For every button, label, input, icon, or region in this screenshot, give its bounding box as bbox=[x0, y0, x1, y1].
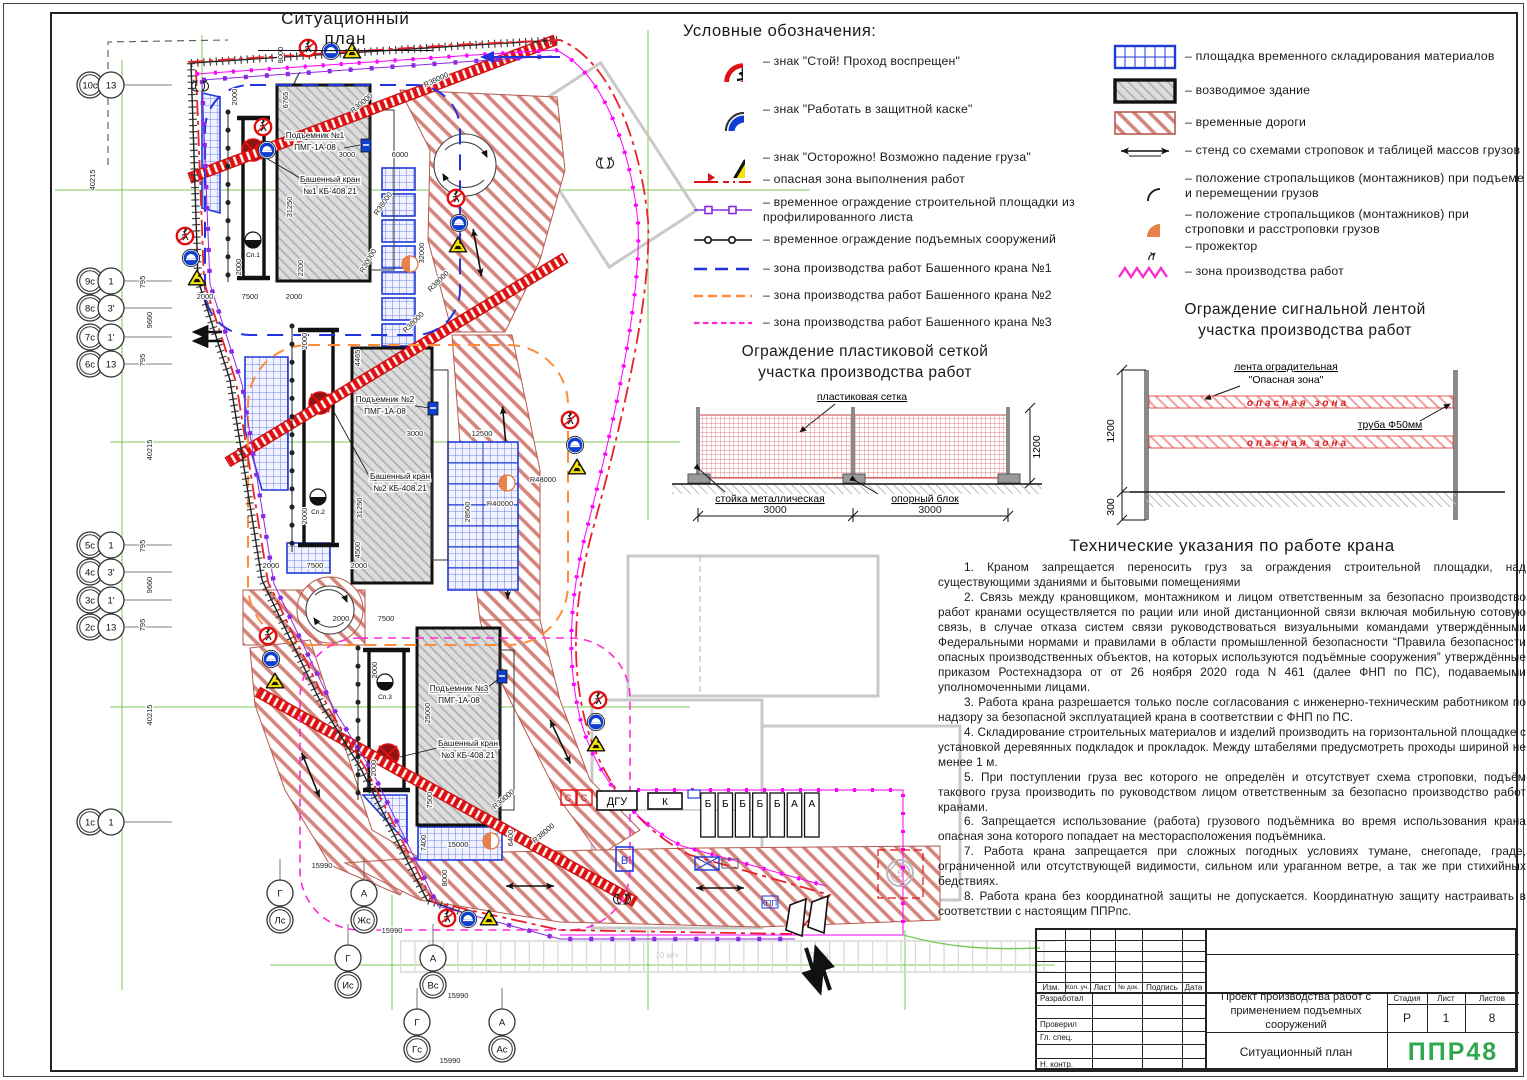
dim-label: 2000 bbox=[300, 333, 309, 350]
slinger-sling-position-icon bbox=[1105, 207, 1185, 237]
axis-bubble-label: 7с bbox=[85, 332, 95, 343]
axis-bubble-label: Жс bbox=[357, 915, 371, 926]
profiled-sheet-fence-line-icon bbox=[683, 198, 763, 222]
roads-swatch bbox=[1105, 110, 1185, 136]
dim-label: 31250 bbox=[355, 498, 364, 519]
tb-stage-label: Стадия bbox=[1387, 992, 1427, 1004]
legend-label: – временные дороги bbox=[1185, 115, 1306, 130]
axis-bubble-label: 5с bbox=[85, 540, 95, 551]
crane3-label: Башенный кран bbox=[438, 739, 498, 748]
floodlight-icon bbox=[596, 157, 613, 168]
dim-label: 40215 bbox=[88, 170, 97, 191]
lifting-fence-line-icon bbox=[683, 228, 763, 252]
dim-label: 2000 bbox=[286, 292, 303, 301]
dim-label: 795 bbox=[138, 276, 147, 289]
kpp-label: КПП bbox=[761, 899, 777, 908]
legend-row-stop-sign: – знак "Стой! Проход воспрещен" bbox=[683, 38, 1098, 86]
storage-area-swatch bbox=[1105, 44, 1185, 70]
hoist3-model: ПМГ-1А-08 bbox=[438, 696, 480, 705]
legend-row-storage-area: – площадка временного складирования мате… bbox=[1105, 42, 1525, 72]
legend-row-crane2-zone: – зона производства работ Башенного кран… bbox=[683, 284, 1098, 308]
mesh-fence-title-line2: участка производства работ bbox=[700, 363, 1030, 384]
ppr48-logo: ППР48 bbox=[1387, 1032, 1519, 1072]
legend-label: – знак "Осторожно! Возможно падение груз… bbox=[763, 150, 1031, 165]
tech-note: 4. Складирование строительных материалов… bbox=[938, 725, 1526, 770]
title-block: Изм. Кол. уч. Лист № док. Подпись Дата Р… bbox=[1035, 928, 1517, 1070]
dim-label: R38000 bbox=[530, 821, 556, 845]
legend-label: – положение стропальщиков (монтажников) … bbox=[1185, 171, 1525, 202]
dim-label: 795 bbox=[138, 354, 147, 367]
dim-label: 2000 bbox=[333, 614, 350, 623]
warn-sign-icon bbox=[587, 736, 604, 751]
axis-bubble-label: 1 bbox=[108, 276, 113, 287]
technical-notes-title: Технические указания по работе крана bbox=[938, 536, 1526, 556]
no-sign-icon bbox=[562, 412, 578, 428]
dim-label: 7400 bbox=[419, 835, 428, 852]
tb-sheet-value: 1 bbox=[1427, 1004, 1465, 1032]
tb-role-ncontrol: Н. контр. bbox=[1037, 1058, 1095, 1071]
dim-label: 7500 bbox=[307, 561, 324, 570]
tb-col-koluch: Кол. уч. bbox=[1065, 982, 1090, 992]
dim-label: 15990 bbox=[312, 861, 333, 870]
tape-zone-text-1: опасная зона bbox=[1247, 398, 1349, 409]
axis-bubble-label: 1с bbox=[85, 817, 95, 828]
tech-note: 5. При поступлении груза вес которого не… bbox=[938, 770, 1526, 815]
helmet-sign-icon bbox=[566, 436, 583, 453]
parking-label: 10 м/ч bbox=[655, 951, 678, 960]
drawing-sheet: { "plan":{ "title":"Ситуационный план", … bbox=[0, 0, 1527, 1080]
axis-bubble-label: Г bbox=[345, 953, 350, 964]
tape-fence-title-line1: Ограждение сигнальной лентой bbox=[1140, 300, 1470, 321]
worker-block-label: Б bbox=[739, 799, 746, 810]
slinger-position-icon bbox=[310, 489, 326, 505]
crane2-model: №2 КБ-408.21 bbox=[373, 484, 427, 493]
mesh-span1-dim: 3000 bbox=[763, 504, 787, 516]
mesh-fence-detail: пластиковая сетка стойка металлическая о… bbox=[655, 388, 1060, 538]
axis-bubble-label: 1' bbox=[107, 595, 114, 606]
legend-label: – зона производства работ Башенного кран… bbox=[763, 261, 1052, 276]
legend-row-slinger-lift: – положение стропальщиков (монтажников) … bbox=[1105, 168, 1525, 204]
tech-note: 3. Работа крана разрешается только после… bbox=[938, 695, 1526, 725]
substation-label: 5 bbox=[897, 869, 903, 880]
dim-label: 2000 bbox=[263, 561, 280, 570]
dim-label: 4500 bbox=[353, 542, 362, 559]
legend-label: – временное ограждение строительной площ… bbox=[763, 195, 1098, 226]
legend-label: – знак "Работать в защитной каске" bbox=[763, 102, 973, 117]
tb-stage-value: Р bbox=[1387, 1004, 1427, 1032]
axis-bubble-label: А bbox=[430, 953, 437, 964]
tape-label-line1: лента оградительная bbox=[1234, 361, 1338, 373]
floodlight-icon bbox=[1105, 234, 1185, 260]
axis-bubble-label: А bbox=[499, 1017, 506, 1028]
axis-bubble-label: Г bbox=[414, 1017, 419, 1028]
worker-blocks: БББББАА bbox=[701, 793, 819, 837]
mesh-height-dim: 1200 bbox=[1031, 435, 1043, 459]
dim-label: 15990 bbox=[382, 926, 403, 935]
axis-bubble-label: 6с bbox=[85, 359, 95, 370]
helmet-sign-icon bbox=[587, 713, 604, 730]
axis-bubble-label: 1 bbox=[108, 540, 113, 551]
tech-note: 2. Связь между крановщиком, монтажником … bbox=[938, 590, 1526, 695]
tb-doc-title-line1: Проект производства работ с bbox=[1221, 991, 1371, 1005]
dim-label: 2000 bbox=[351, 561, 368, 570]
mesh-span2-dim: 3000 bbox=[918, 504, 942, 516]
pipe-label: труба Ф50мм bbox=[1358, 419, 1423, 431]
legend-row-profiled-fence: – временное ограждение строительной площ… bbox=[683, 192, 1098, 228]
worker-block-label: А bbox=[808, 799, 815, 810]
tb-col-list: Лист bbox=[1090, 982, 1115, 992]
legend-label: – знак "Стой! Проход воспрещен" bbox=[763, 54, 960, 69]
slinger-position-icon bbox=[245, 232, 261, 248]
danger-zone-line-icon bbox=[683, 168, 763, 192]
block-s2-label: С bbox=[581, 793, 588, 803]
axis-bubble-label: Гс bbox=[412, 1044, 422, 1055]
axis-bubble-label: 13 bbox=[106, 359, 117, 370]
helmet-sign-icon bbox=[262, 650, 279, 667]
tb-doc-title: Проект производства работ с применением … bbox=[1205, 992, 1387, 1032]
work-zone-line-icon bbox=[1105, 262, 1185, 282]
dim-label: 32000 bbox=[417, 243, 426, 264]
legend-row-building: – возводимое здание bbox=[1105, 76, 1525, 106]
block-s1-label: С bbox=[565, 793, 572, 803]
helmet-sign-icon bbox=[683, 89, 763, 131]
dim-label: 6400 bbox=[506, 830, 515, 847]
legend-label: – временное ограждение подъемных сооруже… bbox=[763, 232, 1056, 247]
tb-col-izm: Изм. bbox=[1037, 982, 1065, 992]
legend-row-helmet-sign: – знак "Работать в защитной каске" bbox=[683, 86, 1098, 134]
no-sign-icon bbox=[260, 628, 276, 644]
tb-sheets-value: 8 bbox=[1465, 1004, 1519, 1032]
no-sign-icon bbox=[439, 910, 455, 926]
legend-label: – прожектор bbox=[1185, 239, 1257, 254]
tb-col-data: Дата bbox=[1182, 982, 1205, 992]
hoist2-model: ПМГ-1А-08 bbox=[364, 407, 406, 416]
dim-label: 2000 bbox=[197, 292, 214, 301]
plan-title: Ситуационный план bbox=[258, 9, 433, 51]
legend-row-lifting-fence: – временное ограждение подъемных сооруже… bbox=[683, 228, 1098, 252]
sp-label: Сп.2 bbox=[311, 509, 325, 516]
slinger-sling-position-icon bbox=[499, 475, 515, 491]
axis-bubble-label: Ас bbox=[496, 1044, 507, 1055]
tb-role-chief: Гл. спец. bbox=[1037, 1031, 1095, 1044]
no-sign-icon bbox=[590, 692, 606, 708]
legend-label: – стенд со схемами строповок и таблицей … bbox=[1185, 143, 1520, 158]
tape-depth-dim: 300 bbox=[1105, 498, 1117, 516]
crane2-zone-line-icon bbox=[683, 284, 763, 308]
dim-label: 6000 bbox=[392, 150, 409, 159]
legend-row-stand: – стенд со схемами строповок и таблицей … bbox=[1105, 134, 1525, 168]
axis-bubble-label: 9с bbox=[85, 276, 95, 287]
crane3-zone-line-icon bbox=[683, 311, 763, 335]
crane2-label: Башенный кран bbox=[370, 472, 430, 481]
sp-label: Сп.3 bbox=[378, 694, 392, 701]
tape-height-dim: 1200 bbox=[1105, 419, 1117, 443]
dim-label: 15990 bbox=[448, 991, 469, 1000]
building-swatch bbox=[1105, 78, 1185, 104]
tech-note: 6. Запрещается использование (работа) гр… bbox=[938, 814, 1526, 844]
axis-bubble-label: 4с bbox=[85, 567, 95, 578]
dim-label: 2000 bbox=[230, 89, 239, 106]
helmet-sign-icon bbox=[182, 249, 199, 266]
axis-bubble-label: 10с bbox=[82, 80, 98, 91]
slinger-position-icon bbox=[377, 674, 393, 690]
dim-label: 7500 bbox=[378, 614, 395, 623]
no-sign-icon bbox=[448, 190, 464, 206]
dim-label: 2000 bbox=[369, 760, 378, 777]
no-sign-icon bbox=[177, 228, 193, 244]
legend-row-crane3-zone: – зона производства работ Башенного кран… bbox=[683, 311, 1098, 335]
legend-label: – зона производства работ Башенного кран… bbox=[763, 315, 1052, 330]
crane1-model: №1 КБ-408.21 bbox=[303, 187, 357, 196]
dgu-label: ДГУ bbox=[607, 796, 628, 808]
dim-label: 2200 bbox=[296, 260, 305, 277]
axis-bubble-label: 13 bbox=[106, 622, 117, 633]
dim-label: 3000 bbox=[407, 429, 424, 438]
helmet-sign-icon bbox=[450, 214, 467, 231]
tech-note: 1. Краном запрещается переносить груз за… bbox=[938, 560, 1526, 590]
dim-label: R40000 bbox=[487, 499, 513, 508]
legend-label: – опасная зона выполнения работ bbox=[763, 172, 965, 187]
stand-icon bbox=[1105, 140, 1185, 162]
axis-bubble-label: 13 bbox=[106, 80, 117, 91]
legend-row-floodlight: – прожектор bbox=[1105, 234, 1525, 260]
worker-block-label: А bbox=[791, 799, 798, 810]
axis-bubble-label: 1' bbox=[107, 332, 114, 343]
tb-doc-title-line2: применением подъемных сооружений bbox=[1205, 1005, 1387, 1033]
tape-fence-detail: лента оградительная "Опасная зона" опасн… bbox=[1098, 355, 1510, 535]
tb-col-podpis: Подпись bbox=[1142, 982, 1182, 992]
dim-label: 28500 bbox=[463, 502, 472, 523]
legend-label: – зона производства работ bbox=[1185, 264, 1344, 279]
crane1-label: Башенный кран bbox=[300, 175, 360, 184]
worker-block-label: Б bbox=[774, 799, 781, 810]
worker-block-label: Б bbox=[722, 799, 729, 810]
crane3-model: №3 КБ-408.21 bbox=[441, 751, 495, 760]
tape-zone-text-2: опасная зона bbox=[1247, 438, 1349, 449]
helmet-sign-icon bbox=[258, 141, 275, 158]
legend-label: – положение стропальщиков (монтажников) … bbox=[1185, 207, 1525, 238]
no-sign-icon bbox=[255, 119, 271, 135]
helmet-sign-icon bbox=[459, 910, 476, 927]
axis-bubble-label: 2с bbox=[85, 622, 95, 633]
mesh-fence-title: Ограждение пластиковой сеткой участка пр… bbox=[700, 342, 1030, 384]
axis-bubble-label: Лс bbox=[275, 915, 286, 926]
dim-label: 2000 bbox=[370, 662, 379, 679]
legend-row-danger-zone: – опасная зона выполнения работ bbox=[683, 168, 1098, 192]
axis-bubble-label: Г bbox=[277, 888, 282, 899]
mesh-net-label: пластиковая сетка bbox=[817, 391, 907, 403]
slinger-sling-position-icon bbox=[402, 256, 418, 272]
technical-notes: Технические указания по работе крана 1. … bbox=[938, 536, 1526, 919]
legend-label: – возводимое здание bbox=[1185, 83, 1310, 98]
crane1-zone-line-icon bbox=[683, 257, 763, 281]
axis-bubble-label: А bbox=[361, 888, 368, 899]
dim-label: 25000 bbox=[423, 703, 432, 724]
dim-label: 795 bbox=[138, 619, 147, 632]
dim-label: 7500 bbox=[425, 792, 434, 809]
hoist3-label: Подъемник №3 bbox=[430, 684, 489, 693]
tape-fence-title-line2: участка производства работ bbox=[1140, 321, 1470, 342]
worker-block-label: Б bbox=[705, 799, 712, 810]
legend-label: – зона производства работ Башенного кран… bbox=[763, 288, 1052, 303]
k-block-label: К bbox=[662, 797, 668, 808]
legend-row-work-zone: – зона производства работ bbox=[1105, 260, 1525, 284]
slinger-position-icon bbox=[1105, 171, 1185, 201]
sp-label: Сп.1 bbox=[246, 252, 260, 259]
tape-label-line2: "Опасная зона" bbox=[1249, 374, 1324, 386]
axis-bubble-label: 3с bbox=[85, 595, 95, 606]
mesh-fence-title-line1: Ограждение пластиковой сеткой bbox=[700, 342, 1030, 363]
axis-bubble-label: 8с bbox=[85, 303, 95, 314]
dim-label: R48000 bbox=[530, 475, 556, 484]
dim-label: 6765 bbox=[281, 92, 290, 109]
slinger-sling-position-icon bbox=[483, 833, 499, 849]
tb-sheet-label: Лист bbox=[1427, 992, 1465, 1004]
legend-label: – площадка временного складирования мате… bbox=[1185, 49, 1495, 64]
tape-fence-title: Ограждение сигнальной лентой участка про… bbox=[1140, 300, 1470, 342]
legend-row-crane1-zone: – зона производства работ Башенного кран… bbox=[683, 257, 1098, 281]
dim-label: 12500 bbox=[472, 429, 493, 438]
axis-bubble-label: Ис bbox=[342, 980, 354, 991]
dim-label: 15990 bbox=[440, 1056, 461, 1065]
worker-block-label: Б bbox=[757, 799, 764, 810]
dim-label: 15000 bbox=[448, 840, 469, 849]
dim-label: 4465 bbox=[353, 350, 362, 367]
axis-bubble-label: 3' bbox=[107, 567, 114, 578]
tb-col-ndok: № док. bbox=[1115, 982, 1142, 992]
hoist1-label: Подъемник №1 bbox=[286, 131, 345, 140]
dim-label: 40215 bbox=[145, 705, 154, 726]
tb-role-developed: Разработал bbox=[1037, 992, 1095, 1005]
no-entry-sign-icon bbox=[683, 42, 763, 82]
tb-sheets-label: Листов bbox=[1465, 992, 1519, 1004]
dim-label: 7500 bbox=[242, 292, 259, 301]
hoist1-model: ПМГ-1А-08 bbox=[294, 143, 336, 152]
dim-label: 2000 bbox=[300, 508, 309, 525]
dim-label: 9660 bbox=[145, 577, 154, 594]
warn-sign-icon bbox=[568, 459, 585, 474]
axis-bubble-label: 1 bbox=[108, 817, 113, 828]
dim-label: 9660 bbox=[145, 312, 154, 329]
dim-label: 40215 bbox=[145, 440, 154, 461]
tb-role-checked: Проверил bbox=[1037, 1018, 1095, 1031]
v-block-label: В bbox=[621, 855, 628, 867]
dim-label: 8000 bbox=[440, 870, 449, 887]
dim-label: 31250 bbox=[285, 197, 294, 218]
dim-label: 2000 bbox=[234, 259, 243, 276]
tech-note: 8. Работа крана без координатной защиты … bbox=[938, 889, 1526, 919]
tb-sheet-name: Ситуационный план bbox=[1205, 1032, 1387, 1072]
axis-bubble-label: Вс bbox=[427, 980, 438, 991]
tech-note: 7. Работа крана запрещается при сложных … bbox=[938, 844, 1526, 889]
dim-label: 3000 bbox=[339, 150, 356, 159]
hoist2-label: Подъемник №2 bbox=[356, 395, 415, 404]
dim-label: 795 bbox=[138, 540, 147, 553]
axis-bubble-label: 3' bbox=[107, 303, 114, 314]
